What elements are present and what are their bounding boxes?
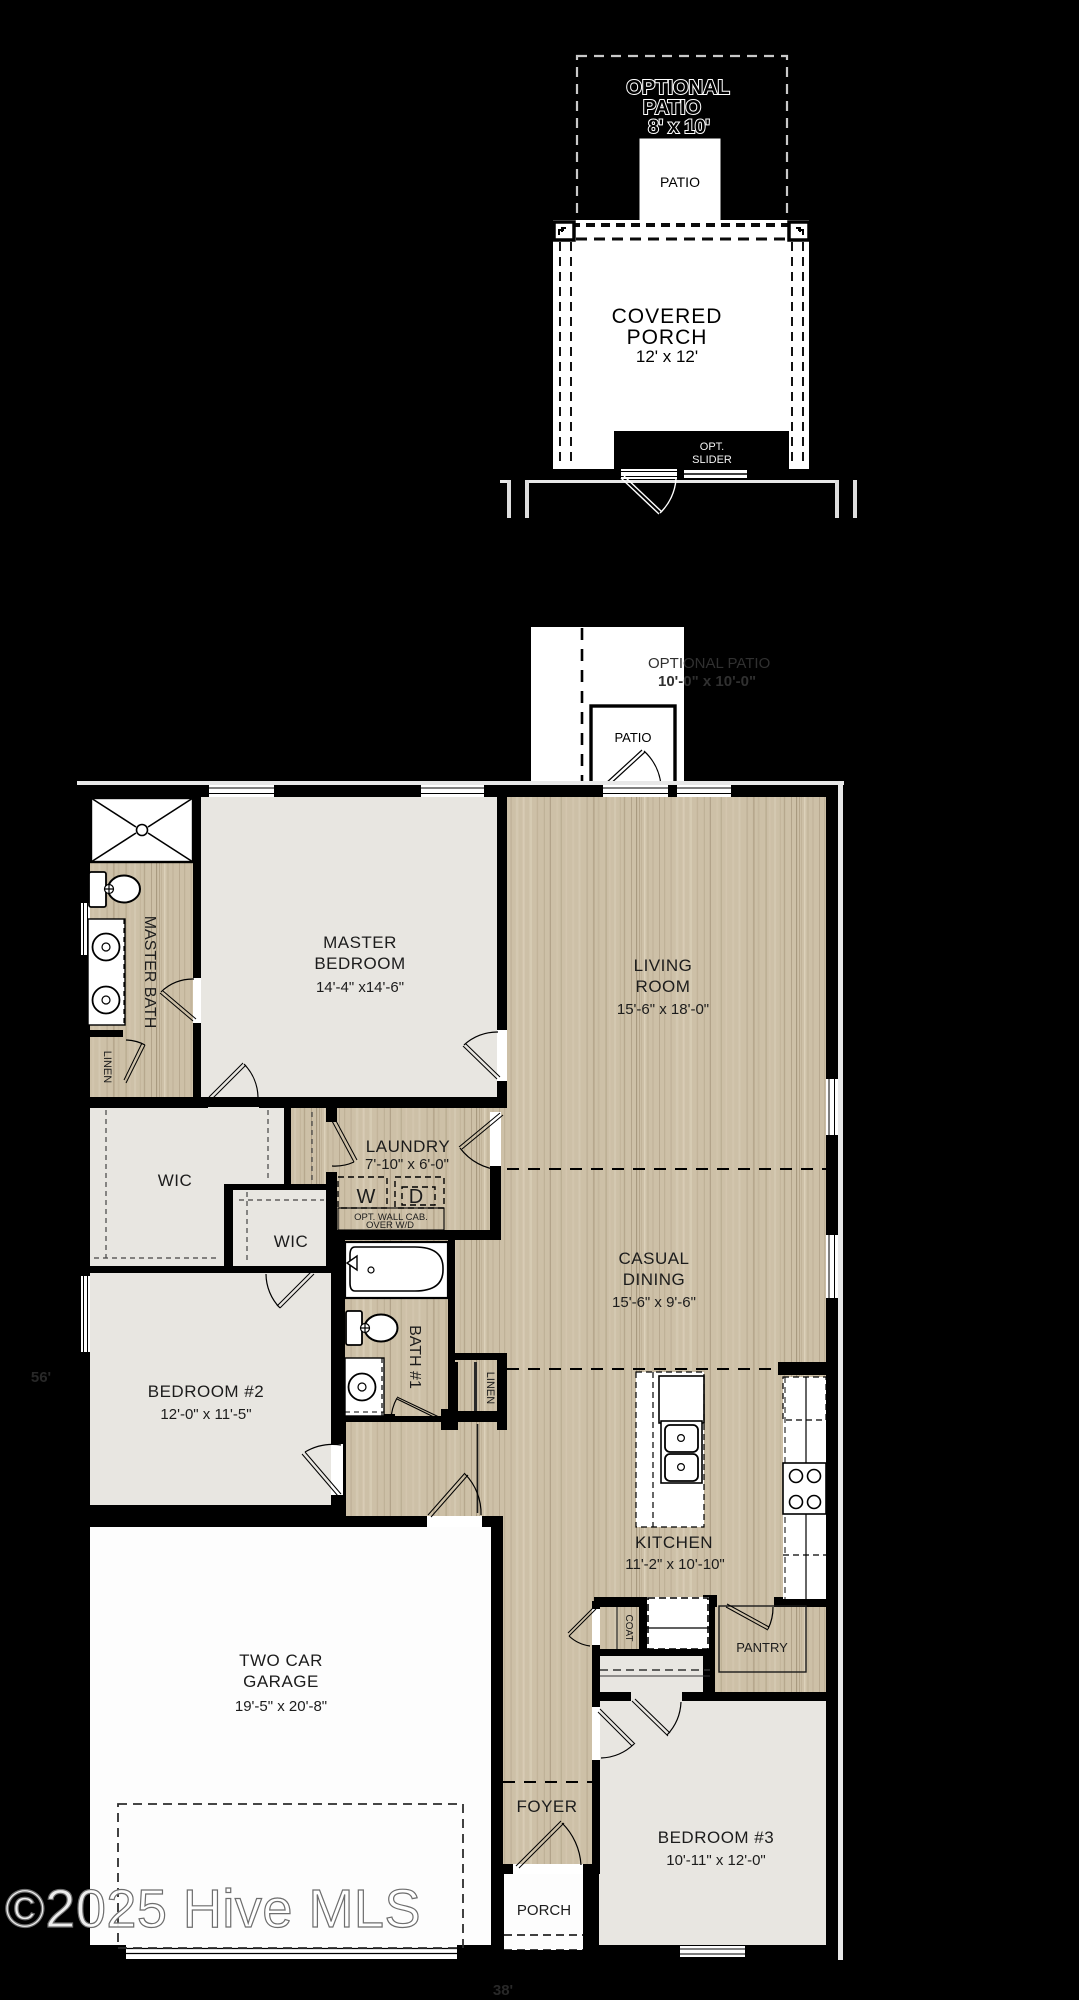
svg-text:10'-0" x 10'-0": 10'-0" x 10'-0"	[658, 673, 756, 690]
svg-text:PATIO: PATIO	[660, 174, 700, 190]
svg-text:12'-0" x 11'-5": 12'-0" x 11'-5"	[160, 1406, 251, 1423]
svg-text:D: D	[409, 1186, 423, 1208]
svg-text:BEDROOM #3: BEDROOM #3	[658, 1828, 774, 1847]
svg-text:19'-5" x 20'-8": 19'-5" x 20'-8"	[235, 1698, 327, 1715]
svg-text:56': 56'	[31, 1369, 51, 1386]
svg-text:FOYER: FOYER	[516, 1797, 577, 1816]
svg-text:OPTIONAL PATIO: OPTIONAL PATIO	[648, 655, 770, 672]
svg-text:MASTER BATH: MASTER BATH	[141, 916, 158, 1029]
svg-text:PATIO: PATIO	[643, 97, 701, 119]
svg-text:LINEN: LINEN	[484, 1372, 496, 1404]
svg-text:COVERED: COVERED	[612, 305, 723, 328]
svg-text:12' x 12': 12' x 12'	[636, 347, 698, 366]
svg-text:WIC: WIC	[158, 1171, 193, 1190]
svg-text:SLIDER: SLIDER	[692, 454, 732, 466]
svg-text:COAT: COAT	[623, 1614, 634, 1641]
svg-text:KITCHEN: KITCHEN	[635, 1533, 713, 1552]
svg-text:ROOM: ROOM	[636, 977, 691, 996]
svg-text:PANTRY: PANTRY	[736, 1640, 788, 1655]
svg-text:LINEN: LINEN	[101, 1051, 113, 1083]
svg-text:BATH #1: BATH #1	[406, 1325, 423, 1389]
svg-text:LAUNDRY: LAUNDRY	[366, 1137, 450, 1156]
svg-text:MASTER: MASTER	[323, 933, 397, 952]
svg-text:BEDROOM: BEDROOM	[314, 954, 405, 973]
svg-text:8' x 10': 8' x 10'	[648, 117, 710, 138]
svg-text:WIC: WIC	[274, 1232, 309, 1251]
svg-text:10'-11" x 12'-0": 10'-11" x 12'-0"	[666, 1852, 766, 1869]
svg-text:7'-10" x 6'-0": 7'-10" x 6'-0"	[365, 1156, 449, 1173]
svg-text:TWO CAR: TWO CAR	[239, 1651, 323, 1670]
svg-text:DINING: DINING	[623, 1270, 686, 1289]
svg-text:PORCH: PORCH	[627, 326, 708, 349]
svg-text:LIVING: LIVING	[634, 956, 693, 975]
svg-text:CASUAL: CASUAL	[618, 1249, 689, 1268]
svg-text:38': 38'	[493, 1982, 513, 1999]
svg-text:BEDROOM #2: BEDROOM #2	[148, 1382, 264, 1401]
svg-text:OVER W/D: OVER W/D	[366, 1220, 414, 1231]
svg-text:OPT.: OPT.	[700, 441, 724, 453]
svg-text:PATIO: PATIO	[614, 730, 651, 745]
svg-text:W: W	[357, 1186, 376, 1208]
svg-text:15'-6" x 18'-0": 15'-6" x 18'-0"	[617, 1001, 709, 1018]
svg-text:PORCH: PORCH	[517, 1902, 571, 1919]
svg-text:©2025 Hive MLS: ©2025 Hive MLS	[5, 1879, 421, 1939]
svg-text:GARAGE: GARAGE	[243, 1672, 319, 1691]
svg-text:OPTIONAL: OPTIONAL	[626, 77, 729, 99]
svg-text:15'-6" x 9'-6": 15'-6" x 9'-6"	[612, 1294, 696, 1311]
svg-text:11'-2" x 10'-10": 11'-2" x 10'-10"	[625, 1556, 725, 1573]
svg-text:14'-4" x14'-6": 14'-4" x14'-6"	[316, 979, 404, 996]
